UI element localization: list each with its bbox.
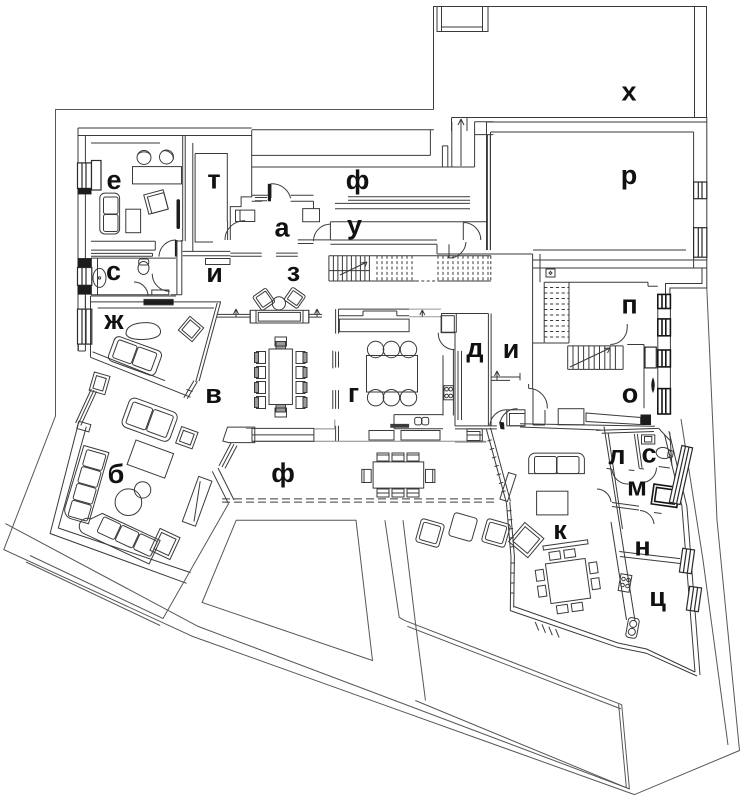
svg-text:л: л xyxy=(608,440,625,470)
svg-text:р: р xyxy=(621,160,638,190)
svg-text:ж: ж xyxy=(103,305,124,335)
svg-text:б: б xyxy=(108,459,125,489)
svg-text:а: а xyxy=(274,213,290,243)
svg-text:о: о xyxy=(622,379,639,409)
svg-text:т: т xyxy=(207,165,220,195)
svg-text:д: д xyxy=(466,333,483,363)
svg-text:ф: ф xyxy=(346,165,370,195)
svg-text:и: и xyxy=(503,334,520,364)
svg-text:и: и xyxy=(206,258,223,288)
svg-text:ц: ц xyxy=(649,582,666,612)
svg-text:г: г xyxy=(348,378,359,408)
svg-text:х: х xyxy=(621,77,636,107)
svg-text:е: е xyxy=(106,165,121,195)
svg-text:в: в xyxy=(205,379,222,409)
svg-text:з: з xyxy=(287,257,300,287)
svg-text:ф: ф xyxy=(271,458,295,488)
svg-text:к: к xyxy=(553,515,567,545)
svg-text:у: у xyxy=(347,210,362,240)
svg-text:с: с xyxy=(106,256,121,286)
svg-text:м: м xyxy=(627,472,647,502)
svg-text:п: п xyxy=(621,290,637,320)
svg-text:с: с xyxy=(641,439,656,469)
svg-text:н: н xyxy=(634,532,650,562)
